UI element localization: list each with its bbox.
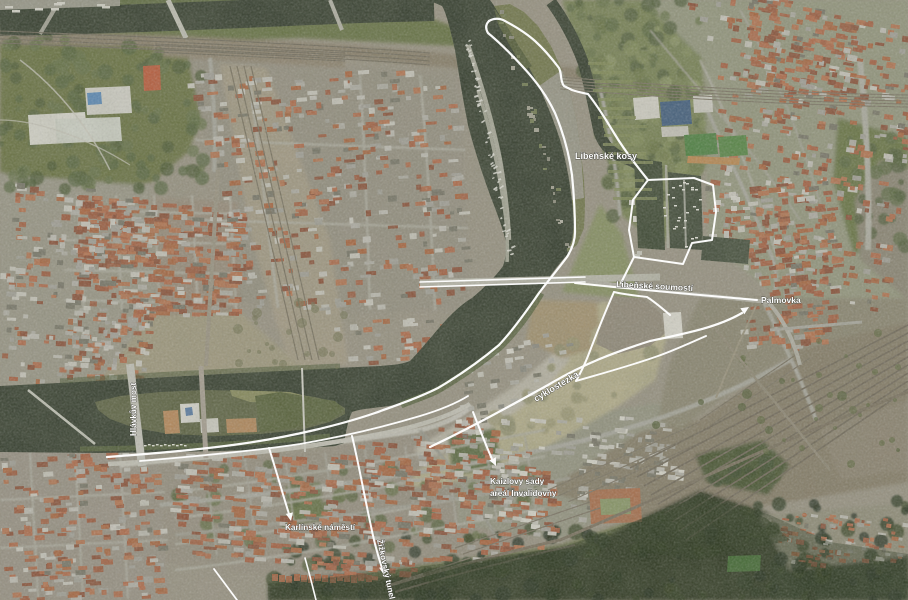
svg-text:Karlínské náměstí: Karlínské náměstí bbox=[285, 523, 356, 532]
svg-text:Hlávkův most: Hlávkův most bbox=[128, 382, 138, 436]
svg-text:Kaizlovy sady: Kaizlovy sady bbox=[490, 477, 545, 486]
svg-text:Libeňské kosy: Libeňské kosy bbox=[575, 151, 637, 161]
svg-text:Palmovka: Palmovka bbox=[761, 295, 801, 305]
svg-text:areál Invalidovny: areál Invalidovny bbox=[490, 489, 557, 498]
